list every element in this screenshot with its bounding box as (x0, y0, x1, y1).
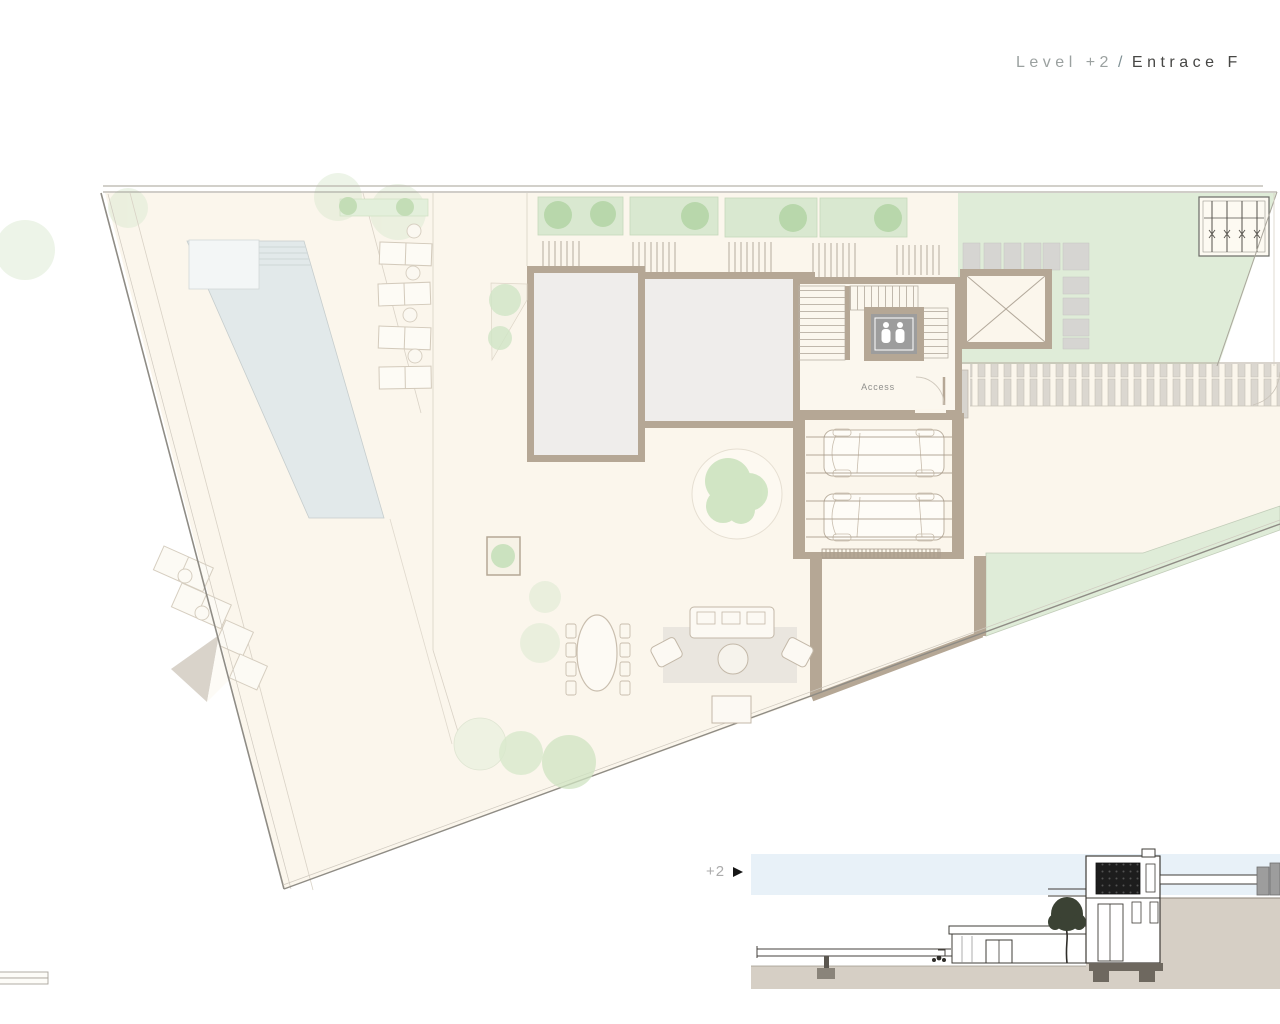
dining-set (566, 615, 630, 695)
room-b (638, 272, 815, 428)
level-marker-arrow-icon (733, 867, 743, 877)
garage (793, 413, 964, 559)
floor-plan-sheet: Level +2/Entrace F Access +2 (0, 0, 1280, 1024)
title-separator: / (1113, 54, 1132, 71)
section-mid-volume (949, 926, 1089, 963)
room-a (527, 266, 645, 462)
stair-flight-right (920, 308, 948, 358)
stair-flight-left (799, 286, 845, 360)
coffee-table (718, 644, 748, 674)
pool-ledge (189, 240, 259, 289)
louver-panel (1096, 863, 1140, 894)
skylight-void (960, 269, 1052, 349)
section-plants (932, 956, 946, 962)
section-level-marker: +2 (706, 863, 743, 880)
car-top (824, 429, 944, 477)
elevator (864, 307, 924, 361)
ottoman (712, 696, 751, 723)
scale-bar (0, 972, 48, 984)
floor-name-label: Entrace F (1132, 54, 1242, 71)
car-bottom (824, 493, 944, 541)
small-planter (487, 537, 520, 575)
marker-label: +2 (706, 863, 725, 880)
entrance-hall (793, 277, 962, 418)
level-label: Level +2 (1016, 54, 1113, 71)
site-plan-drawing (0, 0, 1280, 1024)
stair-flight-top (850, 286, 918, 310)
access-label: Access (842, 382, 914, 392)
sheet-title: Level +2/Entrace F (1016, 54, 1280, 72)
courtyard-tree (692, 449, 782, 539)
section-drawing (751, 849, 1280, 989)
garage-door (822, 549, 940, 558)
